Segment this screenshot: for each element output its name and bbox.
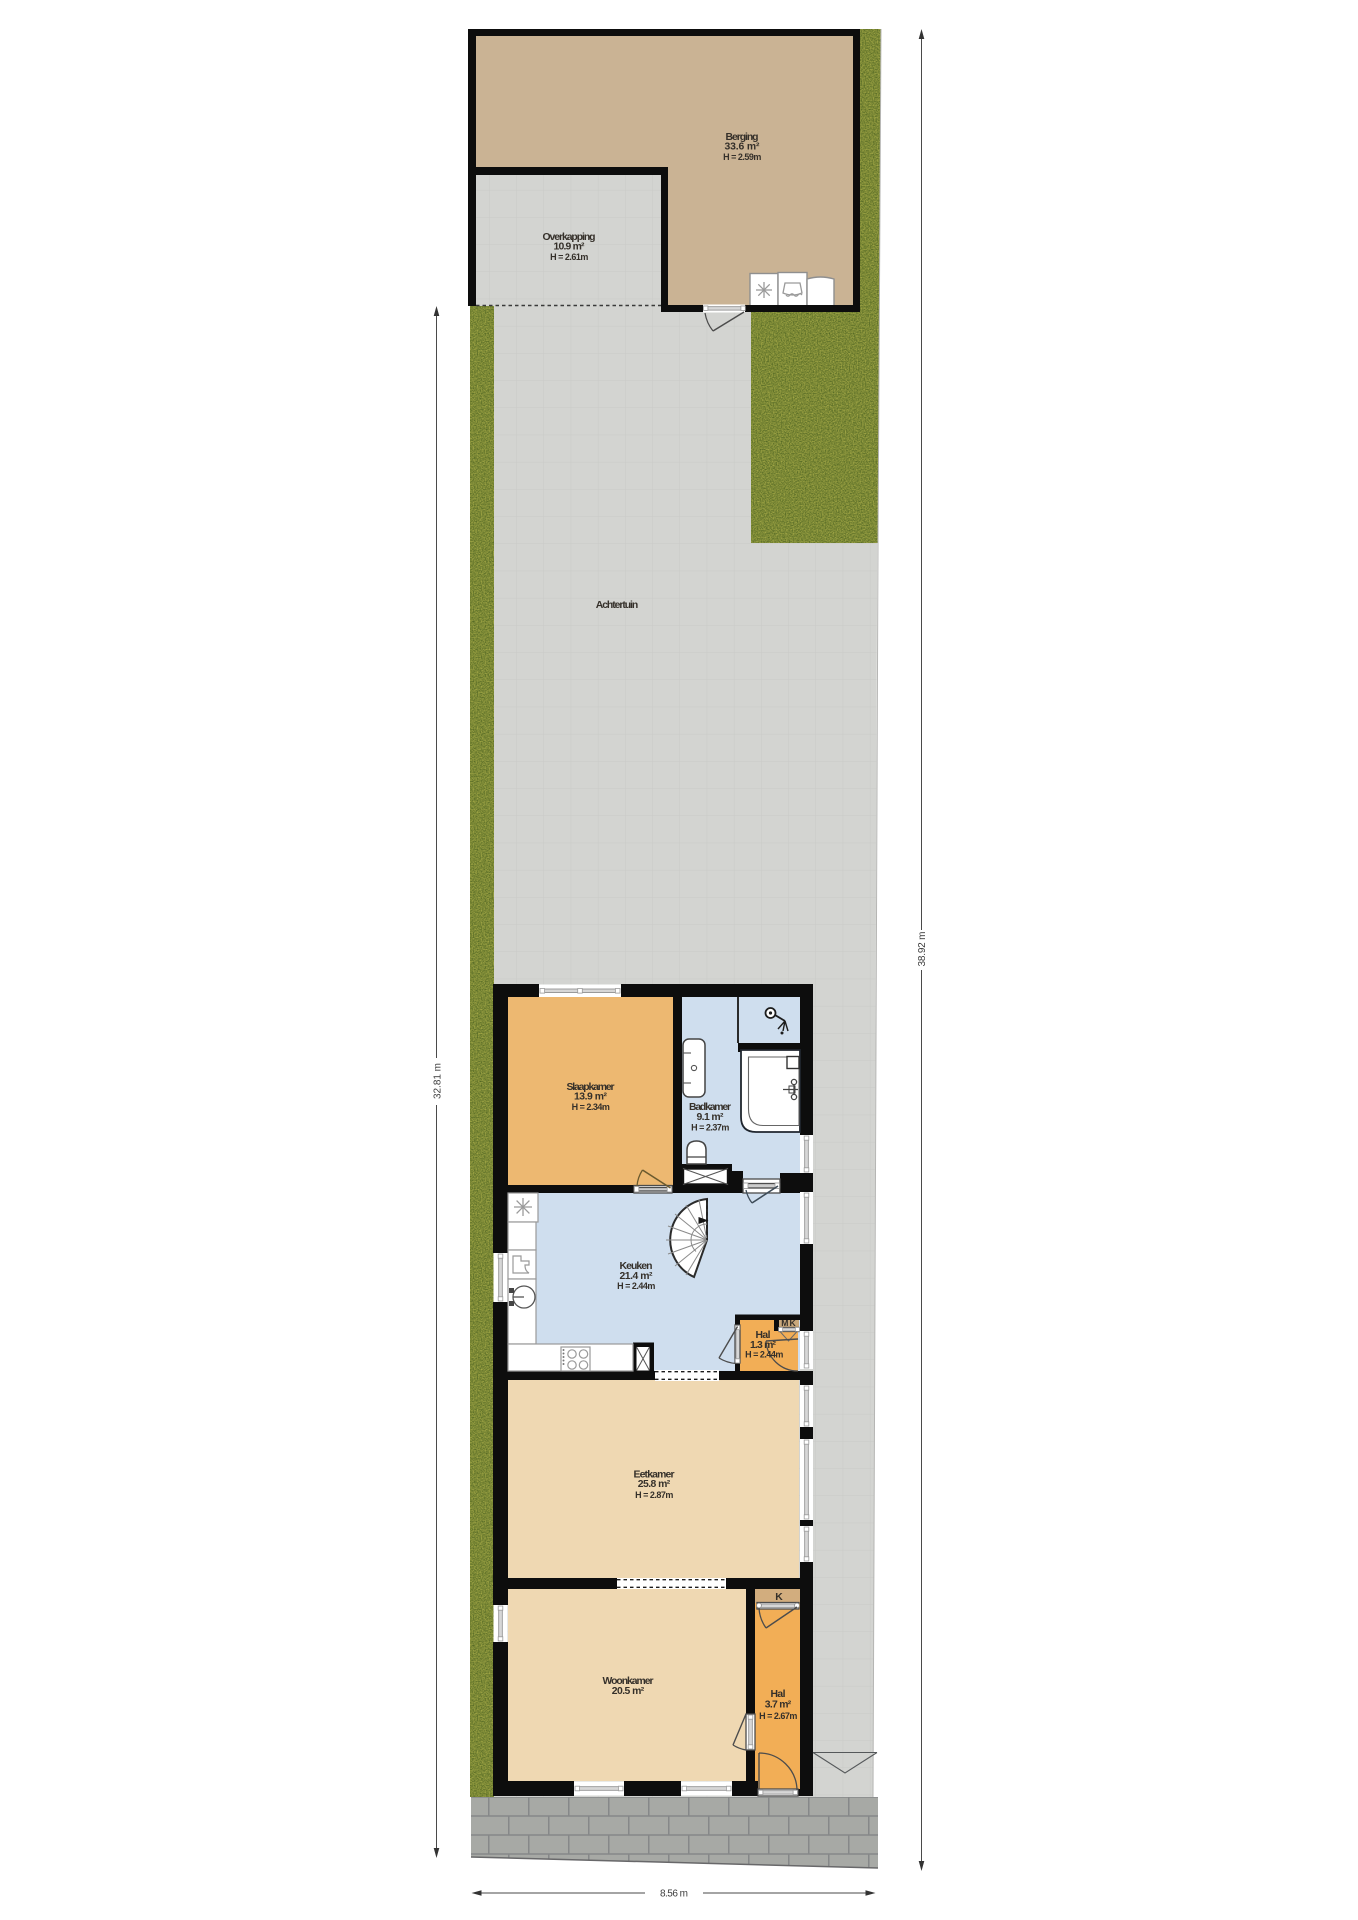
svg-text:MK: MK bbox=[781, 1318, 796, 1328]
svg-text:38.92 m: 38.92 m bbox=[917, 932, 928, 967]
svg-text:K: K bbox=[775, 1592, 783, 1603]
svg-text:8.56 m: 8.56 m bbox=[660, 1889, 688, 1900]
svg-text:20.5 m²: 20.5 m² bbox=[612, 1686, 645, 1697]
svg-text:H = 2.87m: H = 2.87m bbox=[635, 1490, 673, 1500]
svg-text:3.7 m²: 3.7 m² bbox=[765, 1700, 792, 1711]
svg-text:10.9 m²: 10.9 m² bbox=[554, 242, 586, 253]
svg-text:H = 2.44m: H = 2.44m bbox=[617, 1281, 655, 1291]
svg-text:25.8 m²: 25.8 m² bbox=[638, 1479, 671, 1490]
svg-text:Achtertuin: Achtertuin bbox=[596, 600, 639, 611]
svg-text:H = 2.67m: H = 2.67m bbox=[759, 1711, 797, 1721]
svg-text:H = 2.59m: H = 2.59m bbox=[723, 152, 761, 162]
svg-text:13.9 m²: 13.9 m² bbox=[574, 1092, 608, 1103]
svg-text:32.81 m: 32.81 m bbox=[433, 1063, 444, 1099]
svg-text:H = 2.34m: H = 2.34m bbox=[572, 1102, 610, 1112]
svg-text:33.6 m²: 33.6 m² bbox=[725, 142, 761, 153]
svg-text:9.1 m²: 9.1 m² bbox=[697, 1112, 725, 1123]
svg-text:H = 2.44m: H = 2.44m bbox=[745, 1350, 783, 1360]
svg-text:Hal: Hal bbox=[771, 1689, 786, 1700]
svg-text:H = 2.37m: H = 2.37m bbox=[691, 1123, 729, 1133]
svg-text:H = 2.61m: H = 2.61m bbox=[550, 252, 588, 262]
